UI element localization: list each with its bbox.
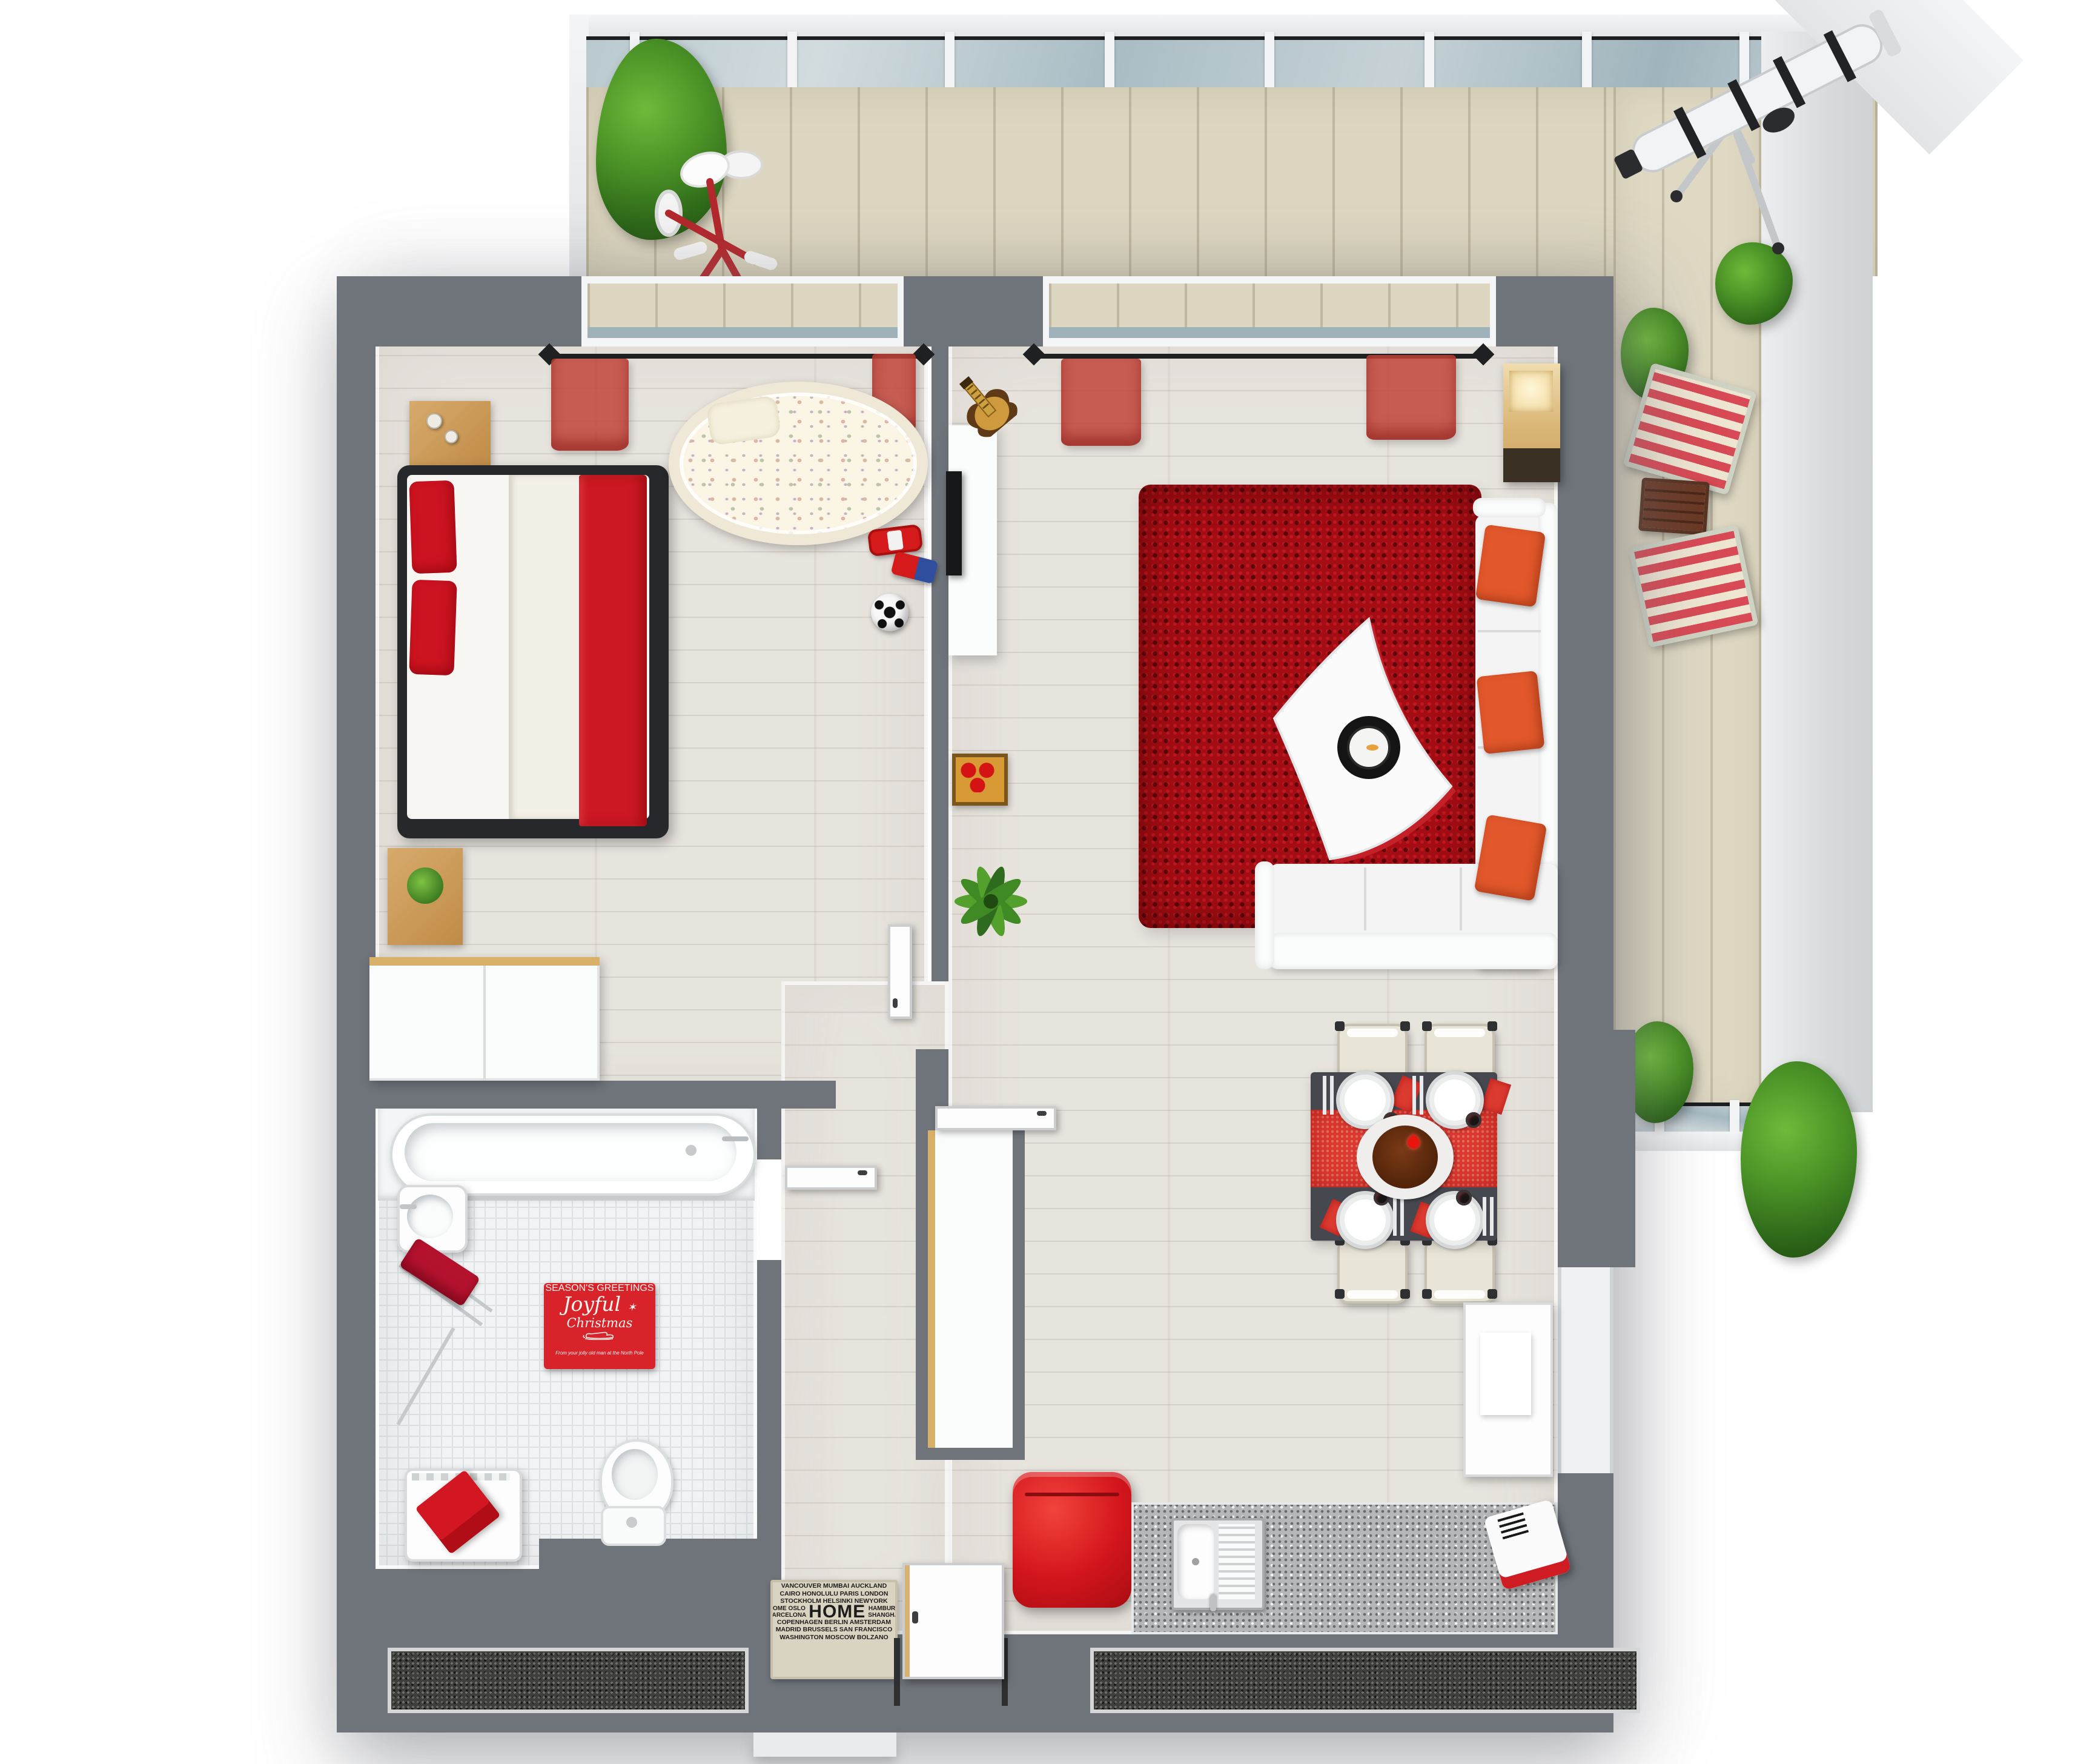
bathroom-door bbox=[785, 1165, 877, 1190]
red-pillow bbox=[409, 580, 457, 675]
door-mat-row: VANCOUVER MUMBAI AUCKLAND bbox=[773, 1582, 895, 1590]
cutlery bbox=[1412, 1076, 1416, 1115]
wardrobe-divider bbox=[483, 966, 486, 1081]
door-mat-row: WASHINGTON MOSCOW BOLZANO bbox=[773, 1634, 895, 1642]
sink-drainboard bbox=[1219, 1524, 1255, 1599]
orange-cushion bbox=[1477, 671, 1545, 754]
fridge-handle bbox=[1025, 1493, 1119, 1496]
white-cabinet-door bbox=[1480, 1333, 1531, 1415]
bathroom-sink-faucet bbox=[400, 1204, 417, 1209]
closet-door bbox=[935, 1106, 1056, 1130]
shelf-lit-niche bbox=[1509, 371, 1553, 412]
toilet-seat bbox=[612, 1449, 658, 1500]
bedroom-door bbox=[888, 924, 912, 1019]
railing-post bbox=[945, 31, 955, 94]
tv bbox=[946, 471, 962, 575]
wall-bathroom-right-lower bbox=[757, 1260, 781, 1636]
curtain-rod-bedroom bbox=[546, 354, 924, 359]
sofa-seat-seam bbox=[1364, 867, 1366, 930]
entrance-step bbox=[753, 1732, 896, 1757]
sleigh-icon bbox=[581, 1330, 618, 1340]
floor-plan: SEASON'S GREETINGS Joyful ✶ Christmas Fr… bbox=[0, 0, 2098, 1764]
sofa-seat-seam bbox=[1478, 630, 1541, 632]
cutlery bbox=[1323, 1076, 1326, 1115]
potted-flowers bbox=[407, 867, 443, 904]
bath-mat-script1: Joyful bbox=[563, 1292, 621, 1316]
vase bbox=[426, 413, 442, 429]
wine-glass bbox=[1466, 1112, 1481, 1128]
bed-duvet bbox=[509, 475, 581, 819]
door-mat-home: HOME bbox=[809, 1608, 865, 1615]
door-handle bbox=[858, 1170, 867, 1175]
sofa-seat-seam bbox=[1460, 867, 1462, 930]
door-handle bbox=[1037, 1111, 1047, 1116]
cake-centerpiece bbox=[1372, 1126, 1438, 1189]
door-mat-word: BARCELONA bbox=[770, 1612, 806, 1619]
cutlery bbox=[1483, 1197, 1486, 1236]
door-mat-word: SHANGHAI bbox=[868, 1612, 898, 1619]
red-pillow bbox=[409, 480, 457, 574]
corner-sofa-armrest-top bbox=[1473, 498, 1546, 517]
door-handle bbox=[893, 998, 898, 1008]
toilet-flush-button bbox=[626, 1517, 637, 1528]
railing-post bbox=[1105, 31, 1114, 94]
living-room-window bbox=[1043, 276, 1496, 346]
window-planter-box bbox=[388, 1648, 749, 1713]
wine-glass bbox=[1456, 1190, 1472, 1205]
wall-bathroom-right-upper bbox=[757, 1081, 781, 1159]
orange-cushion bbox=[1475, 525, 1546, 608]
door-mat-row: CAIRO HONOLULU PARIS LONDON bbox=[773, 1590, 895, 1598]
door-handle bbox=[912, 1611, 918, 1623]
toy-car-windshield bbox=[887, 530, 904, 551]
window-planter-box bbox=[1090, 1648, 1640, 1713]
bath-mat-script2: Christmas bbox=[544, 1317, 655, 1329]
bathtub-faucet bbox=[722, 1136, 749, 1141]
bedroom-window bbox=[581, 276, 904, 346]
entrance-door-frame bbox=[894, 1638, 900, 1706]
dinner-plate bbox=[1426, 1191, 1484, 1249]
toy-football bbox=[871, 594, 908, 631]
christmas-bath-mat: SEASON'S GREETINGS Joyful ✶ Christmas Fr… bbox=[544, 1283, 655, 1369]
railing-post bbox=[1265, 31, 1274, 94]
baby-crib bbox=[669, 382, 928, 545]
coffee-table-with-candle bbox=[1257, 612, 1475, 897]
door-mat-word: ROME OSLO bbox=[770, 1605, 806, 1612]
railing-post bbox=[787, 31, 797, 94]
toy-box-buttons bbox=[959, 761, 996, 792]
red-curtain bbox=[551, 359, 629, 451]
home-door-mat: VANCOUVER MUMBAI AUCKLAND CAIRO HONOLULU… bbox=[770, 1580, 898, 1679]
red-blanket bbox=[579, 475, 647, 826]
telescope bbox=[1597, 0, 1936, 285]
bush bbox=[1741, 1061, 1857, 1258]
door-mat-row: MADRID BRUSSELS SAN FRANCISCO bbox=[773, 1626, 895, 1634]
vase bbox=[445, 430, 458, 443]
cutlery bbox=[1393, 1197, 1397, 1236]
corner-sofa-armrest-left bbox=[1255, 861, 1274, 969]
closet-floor bbox=[928, 1130, 1013, 1448]
sink-drain bbox=[1192, 1558, 1199, 1565]
railing-post bbox=[1730, 1100, 1739, 1134]
corner-sofa-back-bottom bbox=[1269, 933, 1558, 969]
red-curtain bbox=[1366, 355, 1456, 440]
floor-plan-render: SEASON'S GREETINGS Joyful ✶ Christmas Fr… bbox=[0, 0, 2098, 1764]
wall-top-left-segment bbox=[337, 276, 581, 346]
railing-post bbox=[1582, 31, 1592, 94]
wall-exterior-stub-right bbox=[1613, 1030, 1635, 1267]
door-mat-row: COPENHAGEN BERLIN AMSTERDAM bbox=[773, 1619, 895, 1626]
wooden-side-table bbox=[1638, 477, 1710, 535]
sink-faucet bbox=[1210, 1594, 1216, 1611]
bathroom-sink-basin bbox=[407, 1195, 453, 1238]
bath-mat-footer: From your jolly old man at the North Pol… bbox=[544, 1350, 655, 1356]
sparkle-icon: ✶ bbox=[627, 1301, 637, 1314]
wall-bathroom-bottom bbox=[376, 1569, 757, 1637]
railing-post bbox=[1425, 31, 1434, 94]
door-mat-word: HAMBURG bbox=[869, 1605, 898, 1612]
balcony-door-right-wall bbox=[1558, 1267, 1613, 1473]
potted-plant bbox=[940, 848, 1042, 955]
wall-top-middle-segment bbox=[892, 276, 1043, 346]
bathtub-drain bbox=[686, 1145, 697, 1156]
red-curtain bbox=[1061, 359, 1141, 446]
